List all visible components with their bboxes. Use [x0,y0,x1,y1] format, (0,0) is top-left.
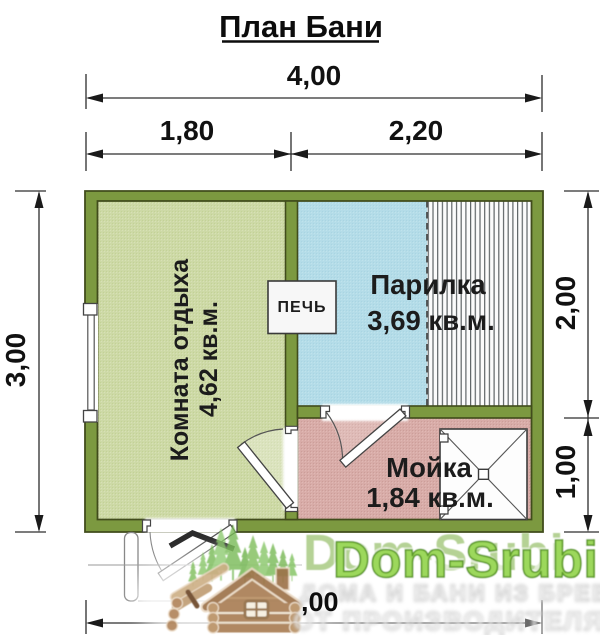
svg-text:,00: ,00 [301,587,339,617]
svg-text:1,00: 1,00 [550,445,581,500]
svg-text:3,00: 3,00 [0,333,31,388]
svg-text:Мойка: Мойка [386,452,472,483]
svg-text:ОТ ПРОИЗВОДИТЕЛЯ: ОТ ПРОИЗВОДИТЕЛЯ [293,606,600,635]
svg-text:2,00: 2,00 [550,276,581,331]
svg-text:Парилка: Парилка [370,269,486,300]
svg-text:3,69 кв.м.: 3,69 кв.м. [367,305,494,336]
svg-text:1,84 кв.м.: 1,84 кв.м. [366,482,493,513]
svg-text:4,00: 4,00 [287,60,342,91]
svg-text:План Бани: План Бани [219,9,383,44]
svg-text:Комната отдыха: Комната отдыха [166,258,194,461]
svg-text:4,62 кв.м.: 4,62 кв.м. [195,301,223,417]
svg-text:ПЕЧЬ: ПЕЧЬ [278,299,327,316]
svg-text:2,20: 2,20 [389,115,444,146]
svg-text:ДОМА И БАНИ ИЗ БРЕВНА: ДОМА И БАНИ ИЗ БРЕВНА [300,580,600,606]
svg-text:1,80: 1,80 [160,115,215,146]
